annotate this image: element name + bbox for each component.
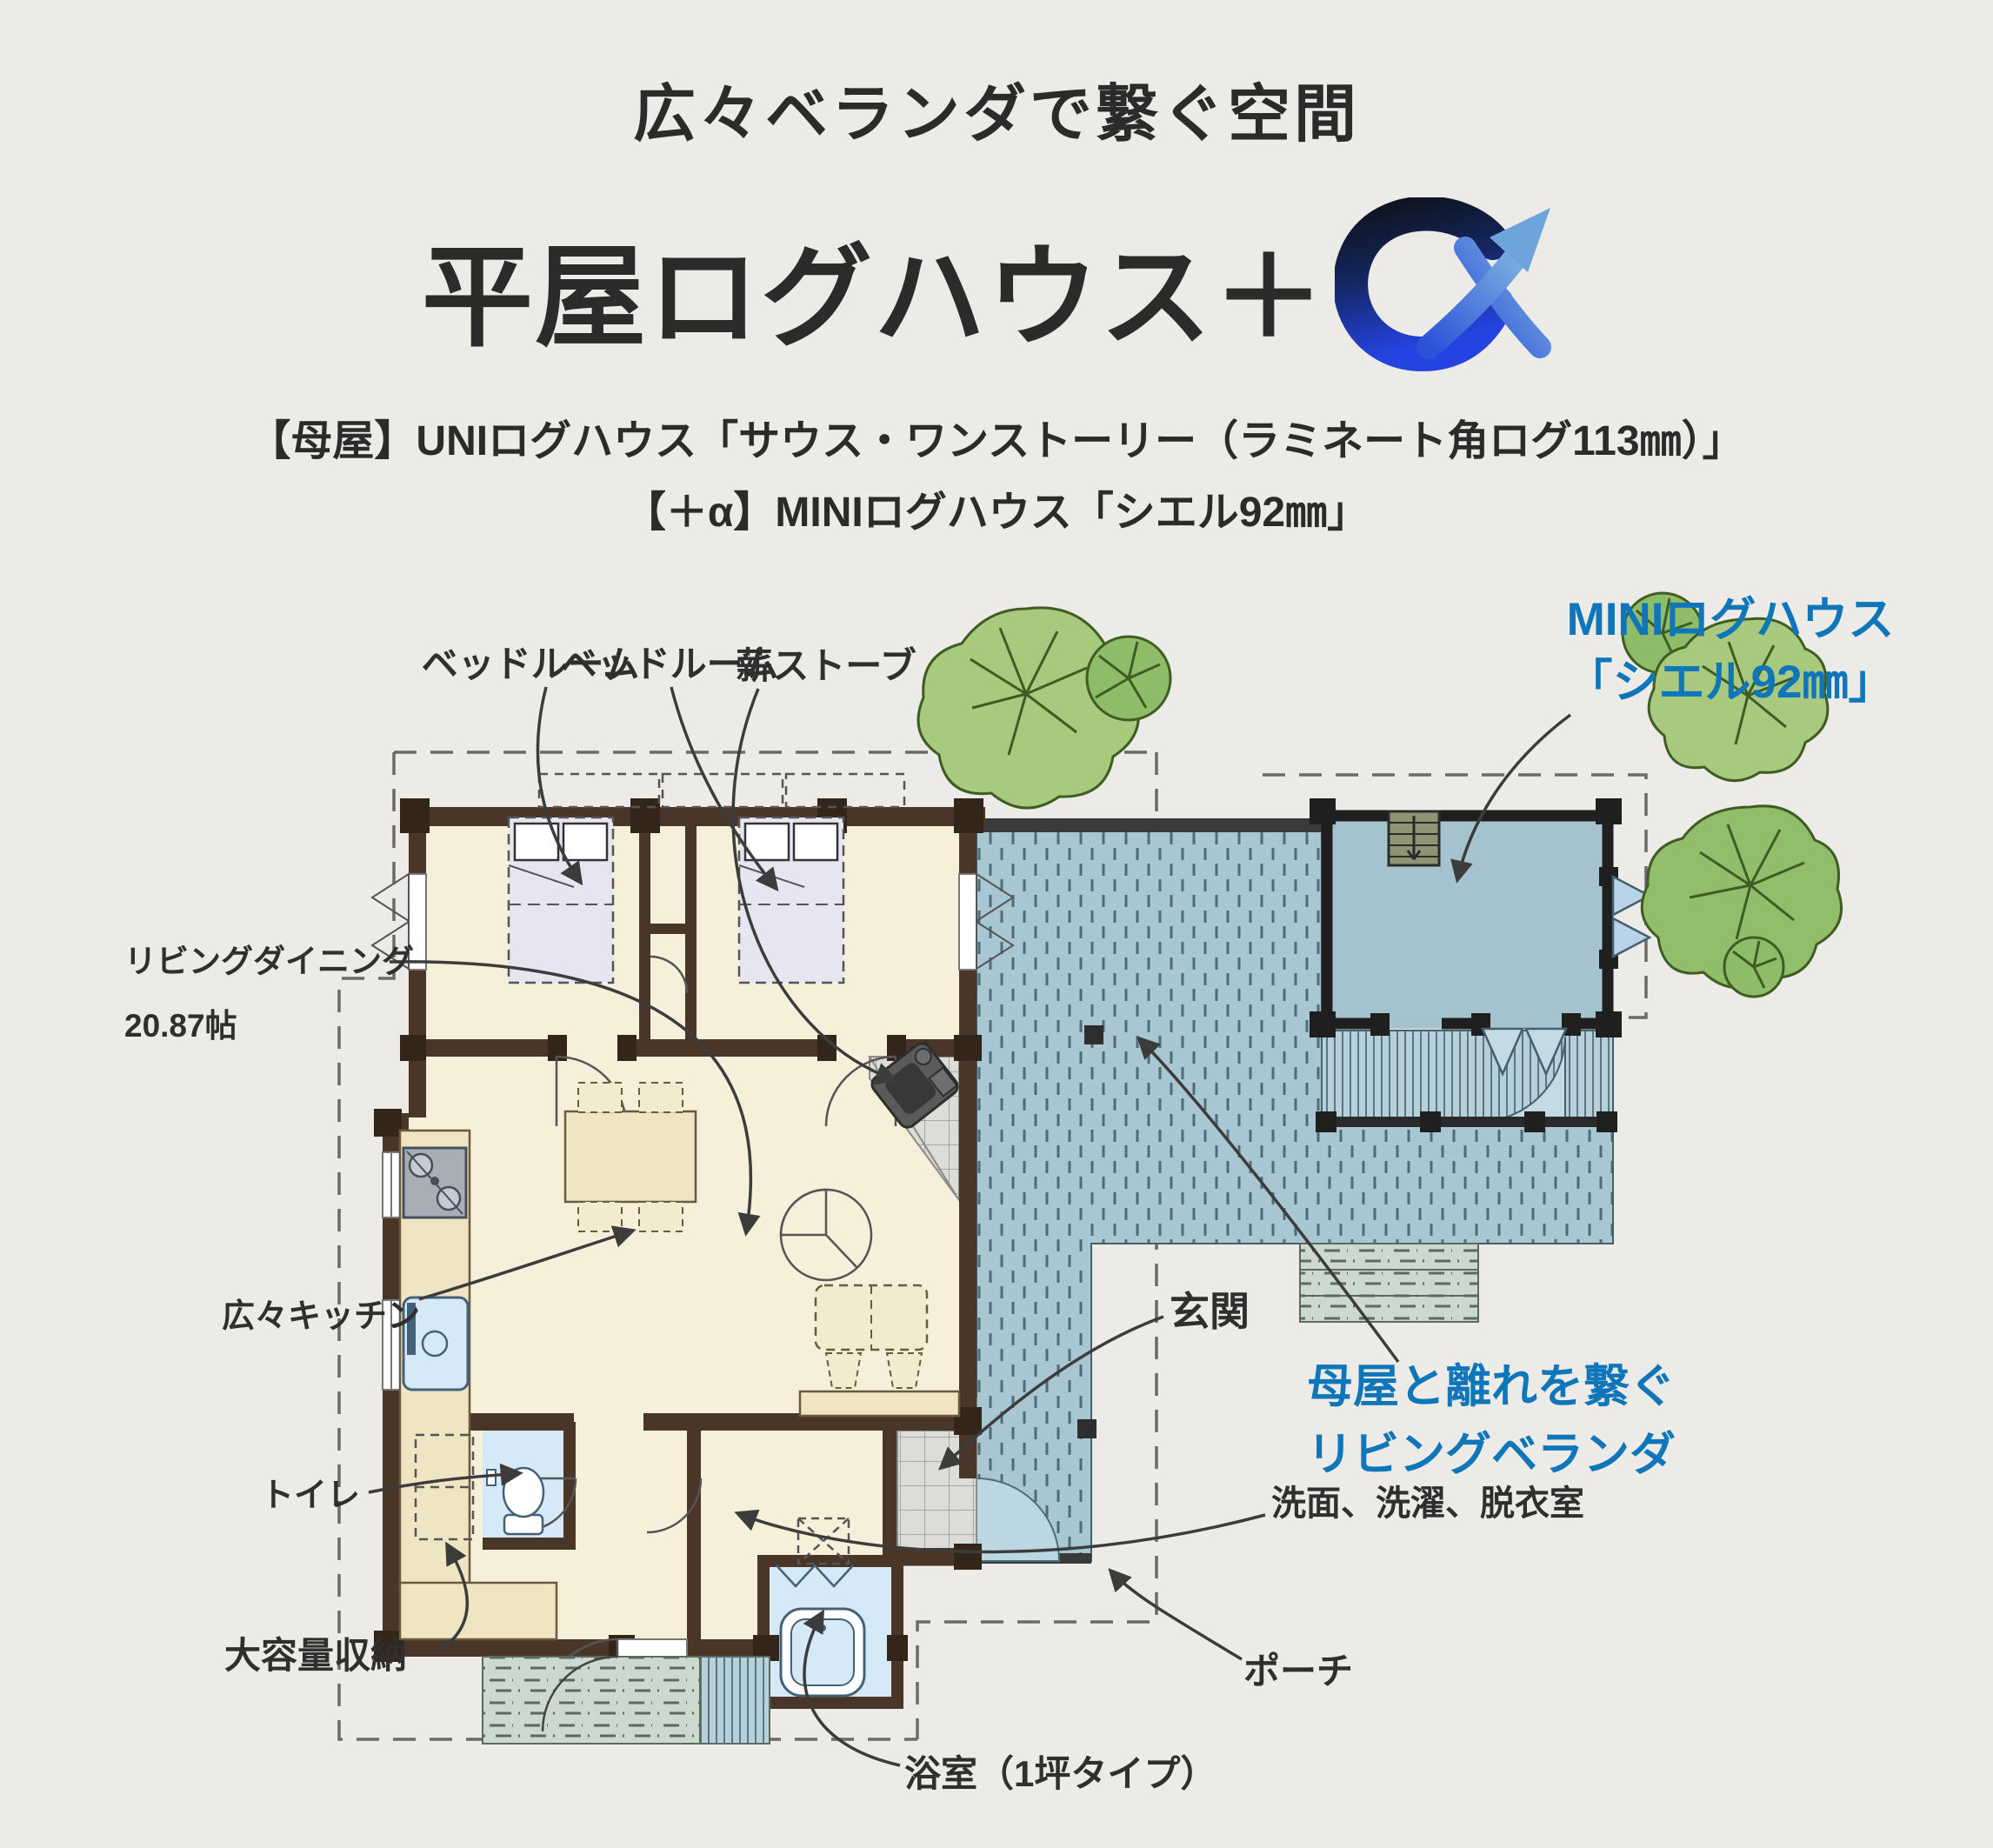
bathroom-label: 浴室（1坪タイプ） [904, 1753, 1216, 1794]
main-house [372, 774, 1013, 1714]
window-icon [617, 1639, 687, 1657]
bed-icon [509, 817, 613, 983]
wardrobe-dashed-boxes [539, 774, 904, 807]
deck-post [1077, 1419, 1096, 1438]
porch-leader [1110, 1571, 1242, 1659]
gas-stove-icon [403, 1148, 466, 1218]
mini-house-label-line1: MINIログハウス [1567, 594, 1895, 645]
poster-page: 広々ベランダで繋ぐ空間 平屋ログハウス＋ [0, 0, 1993, 1848]
kitchen-label: 広々キッチン [222, 1298, 420, 1335]
floor-plan: ベッドルーム ベッドルーム 薪ストーブ MINIログハウス 「シエル92㎜」 リ… [0, 0, 1993, 1848]
mini-house-label-line2: 「シエル92㎜」 [1567, 657, 1895, 708]
counter-bar [800, 1391, 959, 1416]
wood-stove-label: 薪ストーブ [736, 645, 916, 686]
living-label-line2: 20.87帖 [124, 1008, 237, 1044]
porch-label: ポーチ [1243, 1651, 1353, 1691]
living-label-line1: リビングダイニング [124, 944, 414, 979]
stairs-icon [1389, 811, 1439, 865]
washroom-label: 洗面、洗濯、脱衣室 [1271, 1484, 1584, 1523]
veranda-label-line1: 母屋と離れを繋ぐ [1307, 1361, 1676, 1412]
porch-steps [1300, 1244, 1478, 1322]
entrance-label: 玄関 [1170, 1289, 1250, 1334]
bed-icon [739, 817, 843, 983]
deck-post [1084, 1025, 1103, 1044]
south-porch-steps [483, 1657, 770, 1744]
mini-house-terrace [1316, 1031, 1617, 1132]
deck-north-rail [977, 818, 1322, 832]
storage-label: 大容量収納 [224, 1635, 407, 1676]
toilet-label: トイレ [261, 1478, 360, 1514]
veranda-label-line2: リビングベランダ [1307, 1429, 1676, 1480]
